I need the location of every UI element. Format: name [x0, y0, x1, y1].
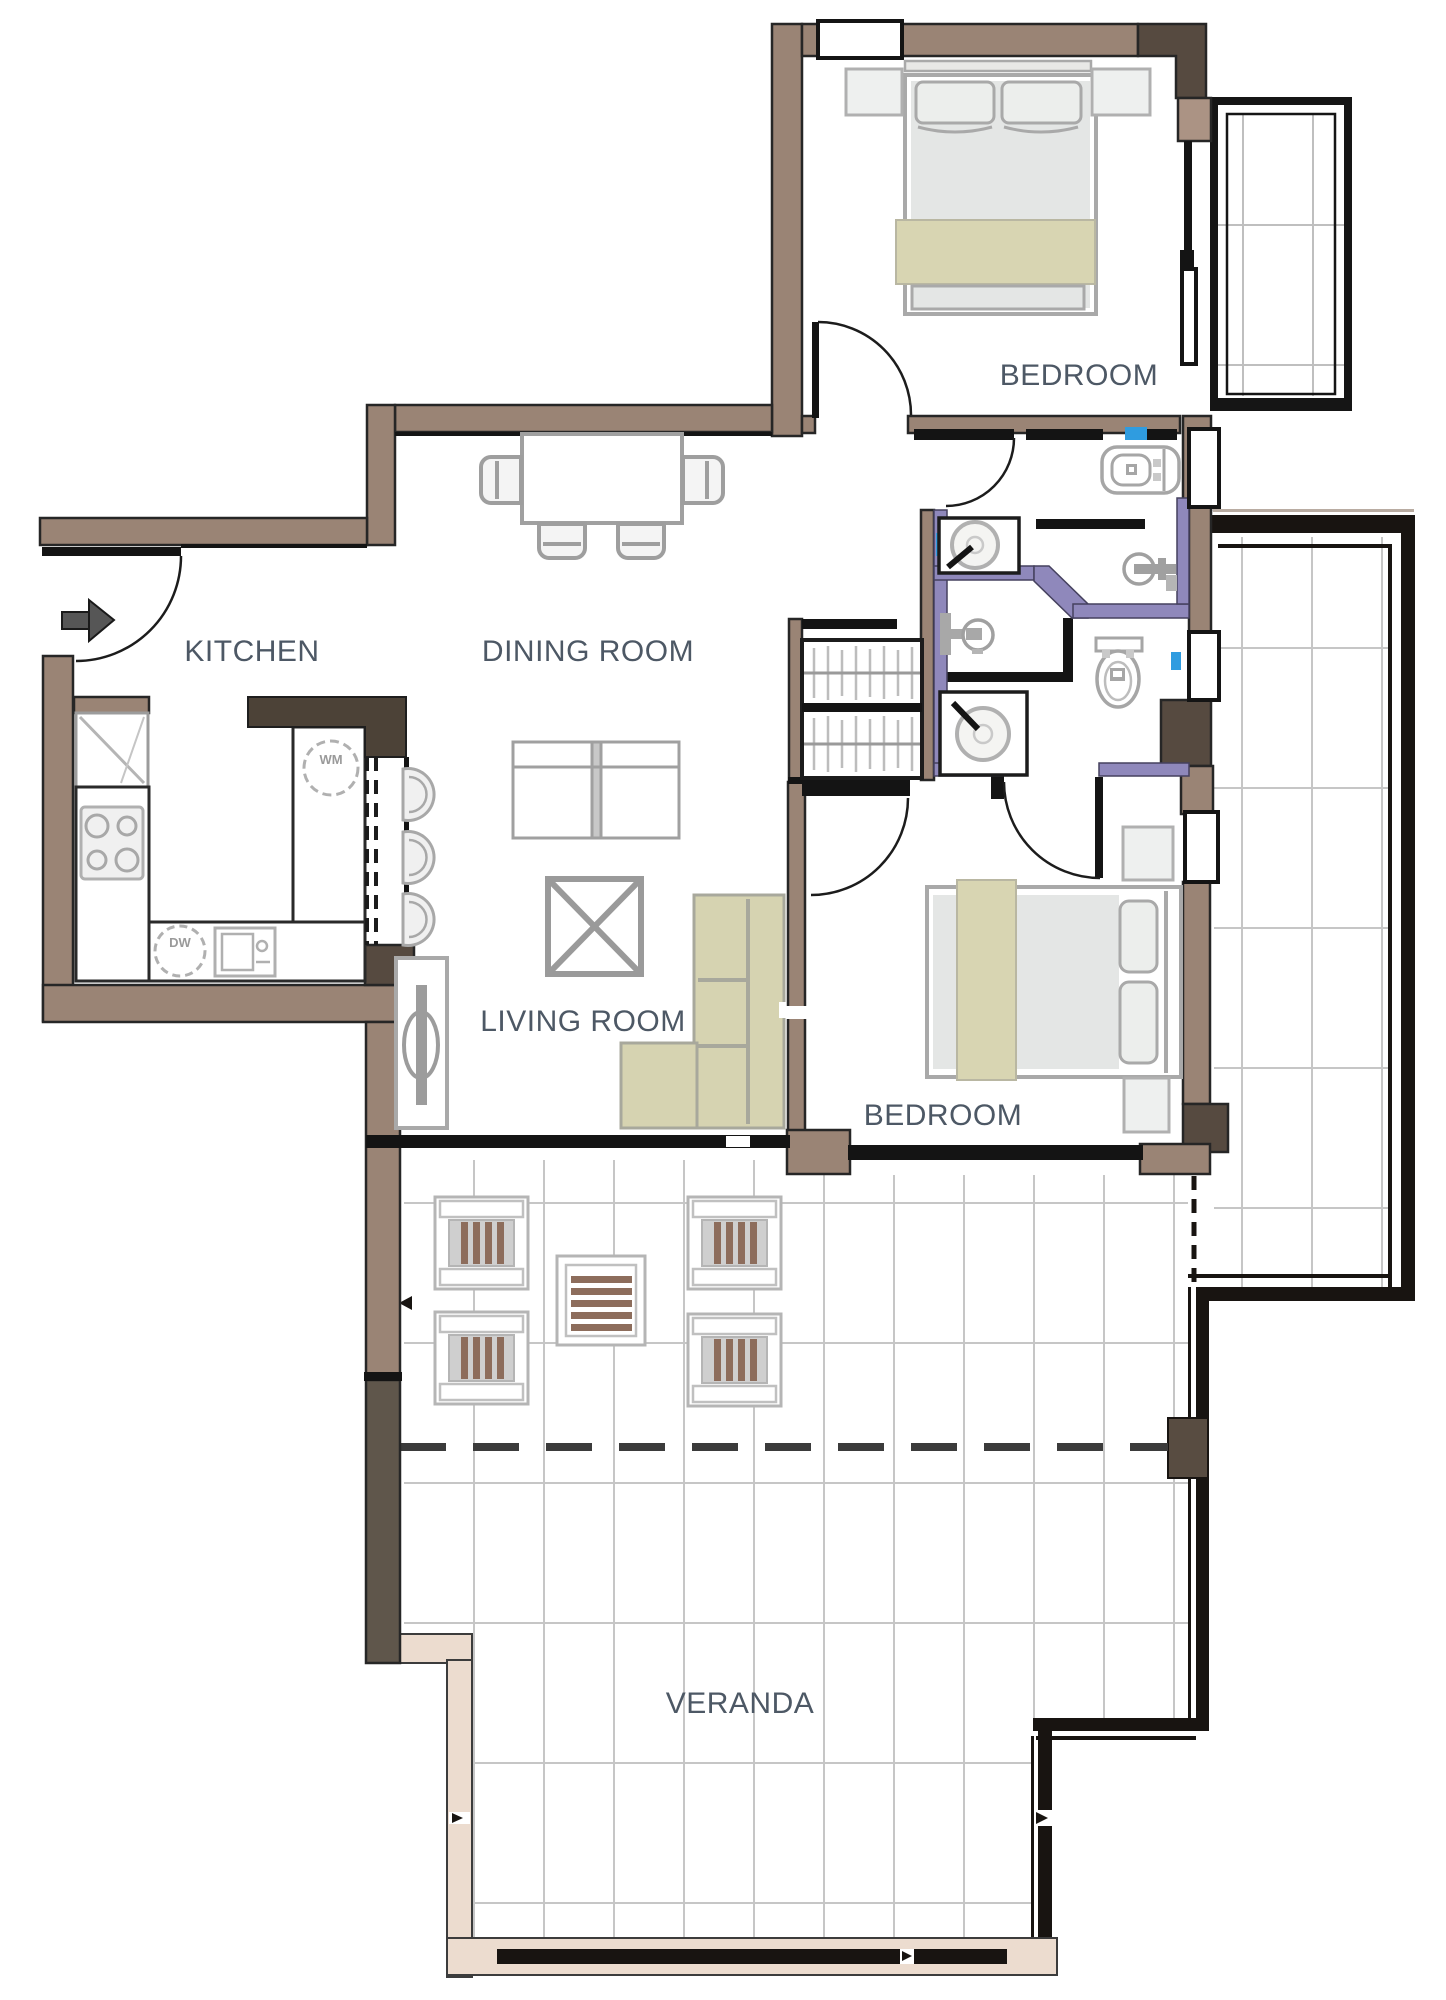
- svg-text:BEDROOM: BEDROOM: [1000, 359, 1159, 392]
- svg-text:DINING ROOM: DINING ROOM: [482, 635, 694, 668]
- svg-text:VERANDA: VERANDA: [666, 1687, 815, 1720]
- svg-text:WM: WM: [319, 752, 342, 767]
- svg-text:LIVING ROOM: LIVING ROOM: [480, 1005, 686, 1038]
- svg-text:BEDROOM: BEDROOM: [864, 1099, 1023, 1132]
- svg-text:DW: DW: [169, 935, 191, 950]
- svg-text:KITCHEN: KITCHEN: [184, 635, 319, 668]
